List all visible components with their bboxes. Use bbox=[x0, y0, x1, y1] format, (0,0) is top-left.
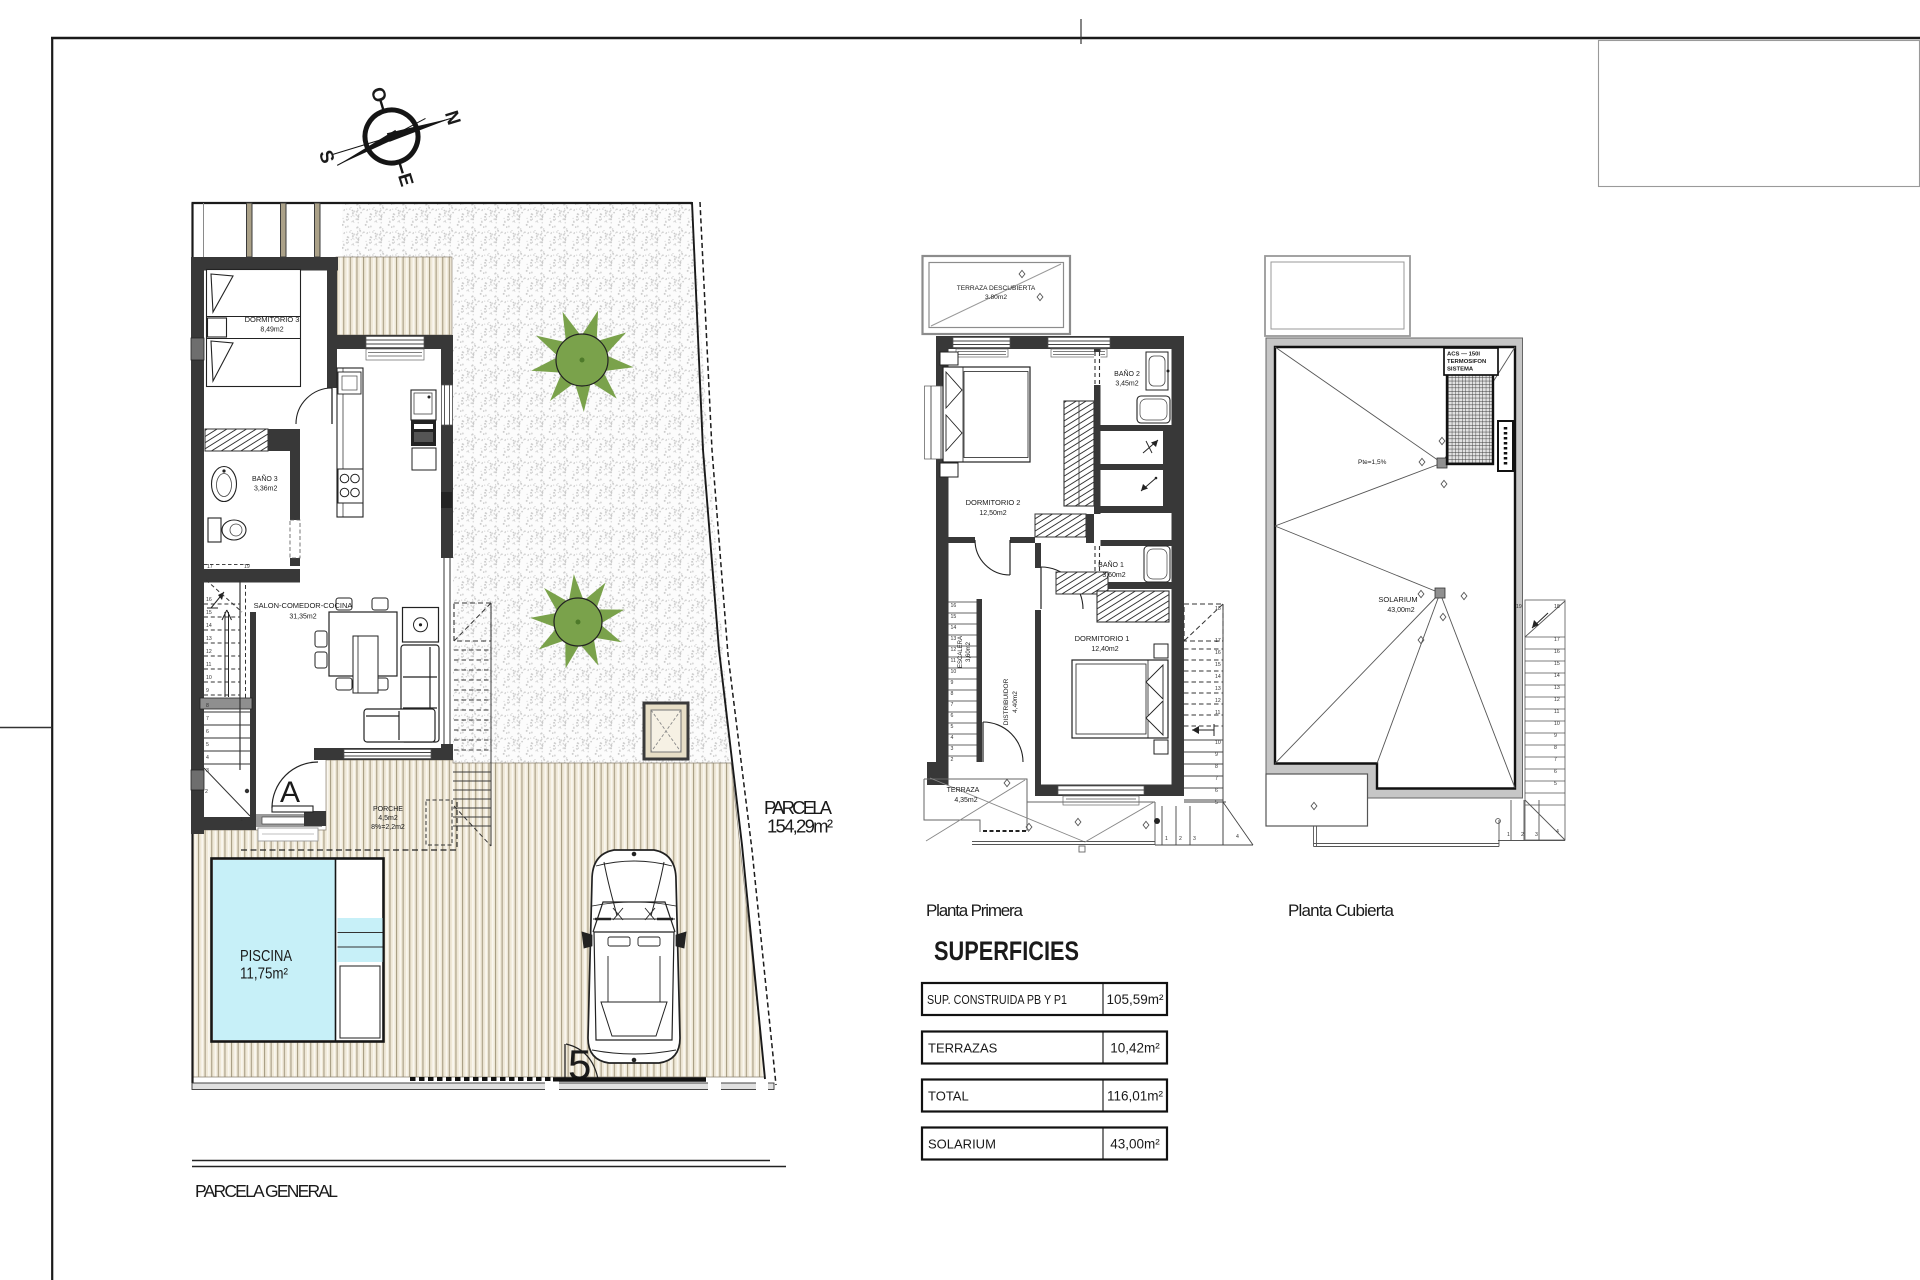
svg-text:TERRAZAS: TERRAZAS bbox=[928, 1041, 998, 1056]
svg-text:5: 5 bbox=[1554, 781, 1557, 787]
svg-text:14: 14 bbox=[951, 625, 957, 631]
svg-text:116,01m²: 116,01m² bbox=[1107, 1089, 1164, 1104]
svg-text:11: 11 bbox=[1215, 710, 1220, 716]
svg-text:7: 7 bbox=[951, 702, 954, 708]
svg-text:3,60m2: 3,60m2 bbox=[966, 641, 972, 662]
svg-text:19: 19 bbox=[244, 564, 250, 570]
svg-text:TERRAZA DESCUBIERTA: TERRAZA DESCUBIERTA bbox=[957, 285, 1036, 292]
svg-text:12: 12 bbox=[951, 647, 957, 653]
svg-text:4: 4 bbox=[1236, 834, 1239, 840]
svg-text:6: 6 bbox=[206, 729, 209, 735]
svg-text:BAÑO 2: BAÑO 2 bbox=[1114, 369, 1140, 378]
svg-text:ESCALERA: ESCALERA bbox=[958, 636, 964, 668]
svg-text:31,35m2: 31,35m2 bbox=[289, 614, 316, 621]
svg-text:3.80m2: 3.80m2 bbox=[985, 294, 1007, 301]
svg-text:3,36m2: 3,36m2 bbox=[254, 486, 277, 493]
svg-text:11: 11 bbox=[951, 658, 956, 664]
svg-text:43,00m2: 43,00m2 bbox=[1387, 607, 1414, 614]
svg-text:10: 10 bbox=[1215, 740, 1221, 746]
svg-text:9: 9 bbox=[206, 688, 209, 694]
svg-text:14: 14 bbox=[1215, 674, 1221, 680]
svg-text:3,45m2: 3,45m2 bbox=[1115, 381, 1138, 388]
svg-text:15: 15 bbox=[1215, 662, 1221, 668]
svg-text:6: 6 bbox=[1554, 769, 1557, 775]
svg-text:8%=2,2m2: 8%=2,2m2 bbox=[371, 824, 405, 831]
svg-text:17: 17 bbox=[207, 564, 213, 570]
svg-text:DORMITORIO 1: DORMITORIO 1 bbox=[1075, 634, 1130, 643]
svg-text:SUPERFICIES: SUPERFICIES bbox=[934, 936, 1079, 966]
svg-text:16: 16 bbox=[1554, 649, 1560, 655]
svg-text:8: 8 bbox=[1554, 745, 1557, 751]
svg-text:12: 12 bbox=[206, 649, 212, 655]
svg-text:DORMITORIO 3: DORMITORIO 3 bbox=[245, 315, 300, 324]
svg-text:Pte=1,5%: Pte=1,5% bbox=[1358, 459, 1387, 466]
svg-text:A: A bbox=[280, 776, 300, 809]
svg-text:2: 2 bbox=[1179, 836, 1182, 842]
svg-text:4,35m2: 4,35m2 bbox=[954, 797, 977, 804]
svg-text:SISTEMA: SISTEMA bbox=[1447, 367, 1474, 373]
svg-text:16: 16 bbox=[206, 597, 212, 603]
svg-text:43,00m²: 43,00m² bbox=[1110, 1137, 1160, 1152]
svg-text:14: 14 bbox=[1554, 673, 1560, 679]
svg-text:BAÑO 3: BAÑO 3 bbox=[252, 474, 278, 483]
svg-text:6: 6 bbox=[1215, 788, 1218, 794]
svg-text:4: 4 bbox=[206, 755, 209, 761]
svg-text:6: 6 bbox=[951, 713, 954, 719]
svg-text:2: 2 bbox=[951, 757, 954, 763]
svg-text:13: 13 bbox=[1554, 685, 1560, 691]
svg-text:1: 1 bbox=[240, 817, 243, 823]
svg-text:5: 5 bbox=[1215, 800, 1218, 806]
svg-text:154,29m²: 154,29m² bbox=[767, 816, 833, 837]
svg-text:8: 8 bbox=[1215, 764, 1218, 770]
svg-text:1: 1 bbox=[1507, 832, 1510, 838]
svg-text:2: 2 bbox=[205, 789, 208, 795]
svg-text:13: 13 bbox=[951, 636, 957, 642]
svg-text:PISCINA: PISCINA bbox=[240, 948, 293, 965]
svg-text:11: 11 bbox=[1554, 709, 1559, 715]
svg-text:105,59m²: 105,59m² bbox=[1106, 992, 1164, 1007]
svg-text:11,75m²: 11,75m² bbox=[240, 966, 288, 983]
svg-text:3: 3 bbox=[951, 746, 954, 752]
svg-text:9: 9 bbox=[1215, 752, 1218, 758]
svg-text:16: 16 bbox=[1215, 650, 1221, 656]
svg-text:PORCHE: PORCHE bbox=[373, 806, 403, 813]
svg-text:10,42m²: 10,42m² bbox=[1110, 1041, 1160, 1056]
svg-text:7: 7 bbox=[1215, 776, 1218, 782]
svg-text:SUP. CONSTRUIDA PB Y P1: SUP. CONSTRUIDA PB Y P1 bbox=[927, 992, 1067, 1007]
svg-text:16: 16 bbox=[951, 603, 957, 609]
svg-text:17: 17 bbox=[1215, 638, 1221, 644]
svg-text:8: 8 bbox=[206, 703, 209, 709]
svg-text:DISTRIBUIDOR: DISTRIBUIDOR bbox=[1003, 678, 1010, 725]
svg-text:14: 14 bbox=[206, 623, 212, 629]
svg-text:5: 5 bbox=[951, 724, 954, 730]
svg-text:5: 5 bbox=[206, 742, 209, 748]
svg-text:4,5m2: 4,5m2 bbox=[378, 815, 398, 822]
svg-text:8: 8 bbox=[951, 691, 954, 697]
svg-text:2: 2 bbox=[1521, 832, 1524, 838]
svg-text:15: 15 bbox=[951, 614, 957, 620]
svg-text:Planta Primera: Planta Primera bbox=[926, 901, 1024, 920]
svg-text:12: 12 bbox=[1215, 698, 1221, 704]
svg-text:4: 4 bbox=[1556, 829, 1559, 835]
svg-text:SALON-COMEDOR-COCINA: SALON-COMEDOR-COCINA bbox=[254, 601, 353, 610]
svg-text:19: 19 bbox=[1516, 604, 1522, 610]
svg-text:1: 1 bbox=[1165, 836, 1168, 842]
svg-text:3: 3 bbox=[1193, 836, 1196, 842]
svg-text:TOTAL: TOTAL bbox=[928, 1089, 969, 1104]
svg-text:BAÑO 1: BAÑO 1 bbox=[1098, 560, 1124, 569]
svg-text:9: 9 bbox=[951, 680, 954, 686]
svg-text:15: 15 bbox=[1554, 661, 1560, 667]
svg-text:TERRAZA: TERRAZA bbox=[947, 787, 980, 794]
svg-text:18: 18 bbox=[1215, 606, 1221, 612]
svg-text:3,60m2: 3,60m2 bbox=[1102, 572, 1125, 579]
svg-text:7: 7 bbox=[206, 716, 209, 722]
svg-text:4: 4 bbox=[951, 735, 954, 741]
svg-text:12: 12 bbox=[1554, 697, 1560, 703]
svg-text:Planta Cubierta: Planta Cubierta bbox=[1288, 901, 1395, 920]
svg-text:11: 11 bbox=[206, 662, 211, 668]
svg-text:17: 17 bbox=[1554, 637, 1560, 643]
svg-text:13: 13 bbox=[1215, 686, 1221, 692]
svg-text:PARCELA GENERAL: PARCELA GENERAL bbox=[195, 1181, 338, 1201]
svg-text:18: 18 bbox=[1554, 604, 1560, 610]
svg-text:12,50m2: 12,50m2 bbox=[979, 510, 1006, 517]
svg-text:10: 10 bbox=[951, 669, 957, 675]
svg-text:3: 3 bbox=[1535, 832, 1538, 838]
svg-text:10: 10 bbox=[206, 675, 212, 681]
svg-text:9: 9 bbox=[1554, 733, 1557, 739]
svg-text:SOLARIUM: SOLARIUM bbox=[1378, 595, 1417, 604]
svg-text:12,40m2: 12,40m2 bbox=[1091, 646, 1118, 653]
svg-text:ACS — 150l: ACS — 150l bbox=[1447, 352, 1480, 358]
svg-text:8,49m2: 8,49m2 bbox=[260, 327, 283, 334]
svg-text:TERMOSIFON: TERMOSIFON bbox=[1447, 359, 1486, 365]
svg-text:10: 10 bbox=[1554, 721, 1560, 727]
svg-text:SOLARIUM: SOLARIUM bbox=[928, 1137, 996, 1152]
svg-text:7: 7 bbox=[1554, 757, 1557, 763]
svg-text:DORMITORIO 2: DORMITORIO 2 bbox=[966, 498, 1021, 507]
svg-text:4,40m2: 4,40m2 bbox=[1012, 691, 1019, 713]
svg-text:13: 13 bbox=[206, 636, 212, 642]
svg-text:15: 15 bbox=[206, 610, 212, 616]
